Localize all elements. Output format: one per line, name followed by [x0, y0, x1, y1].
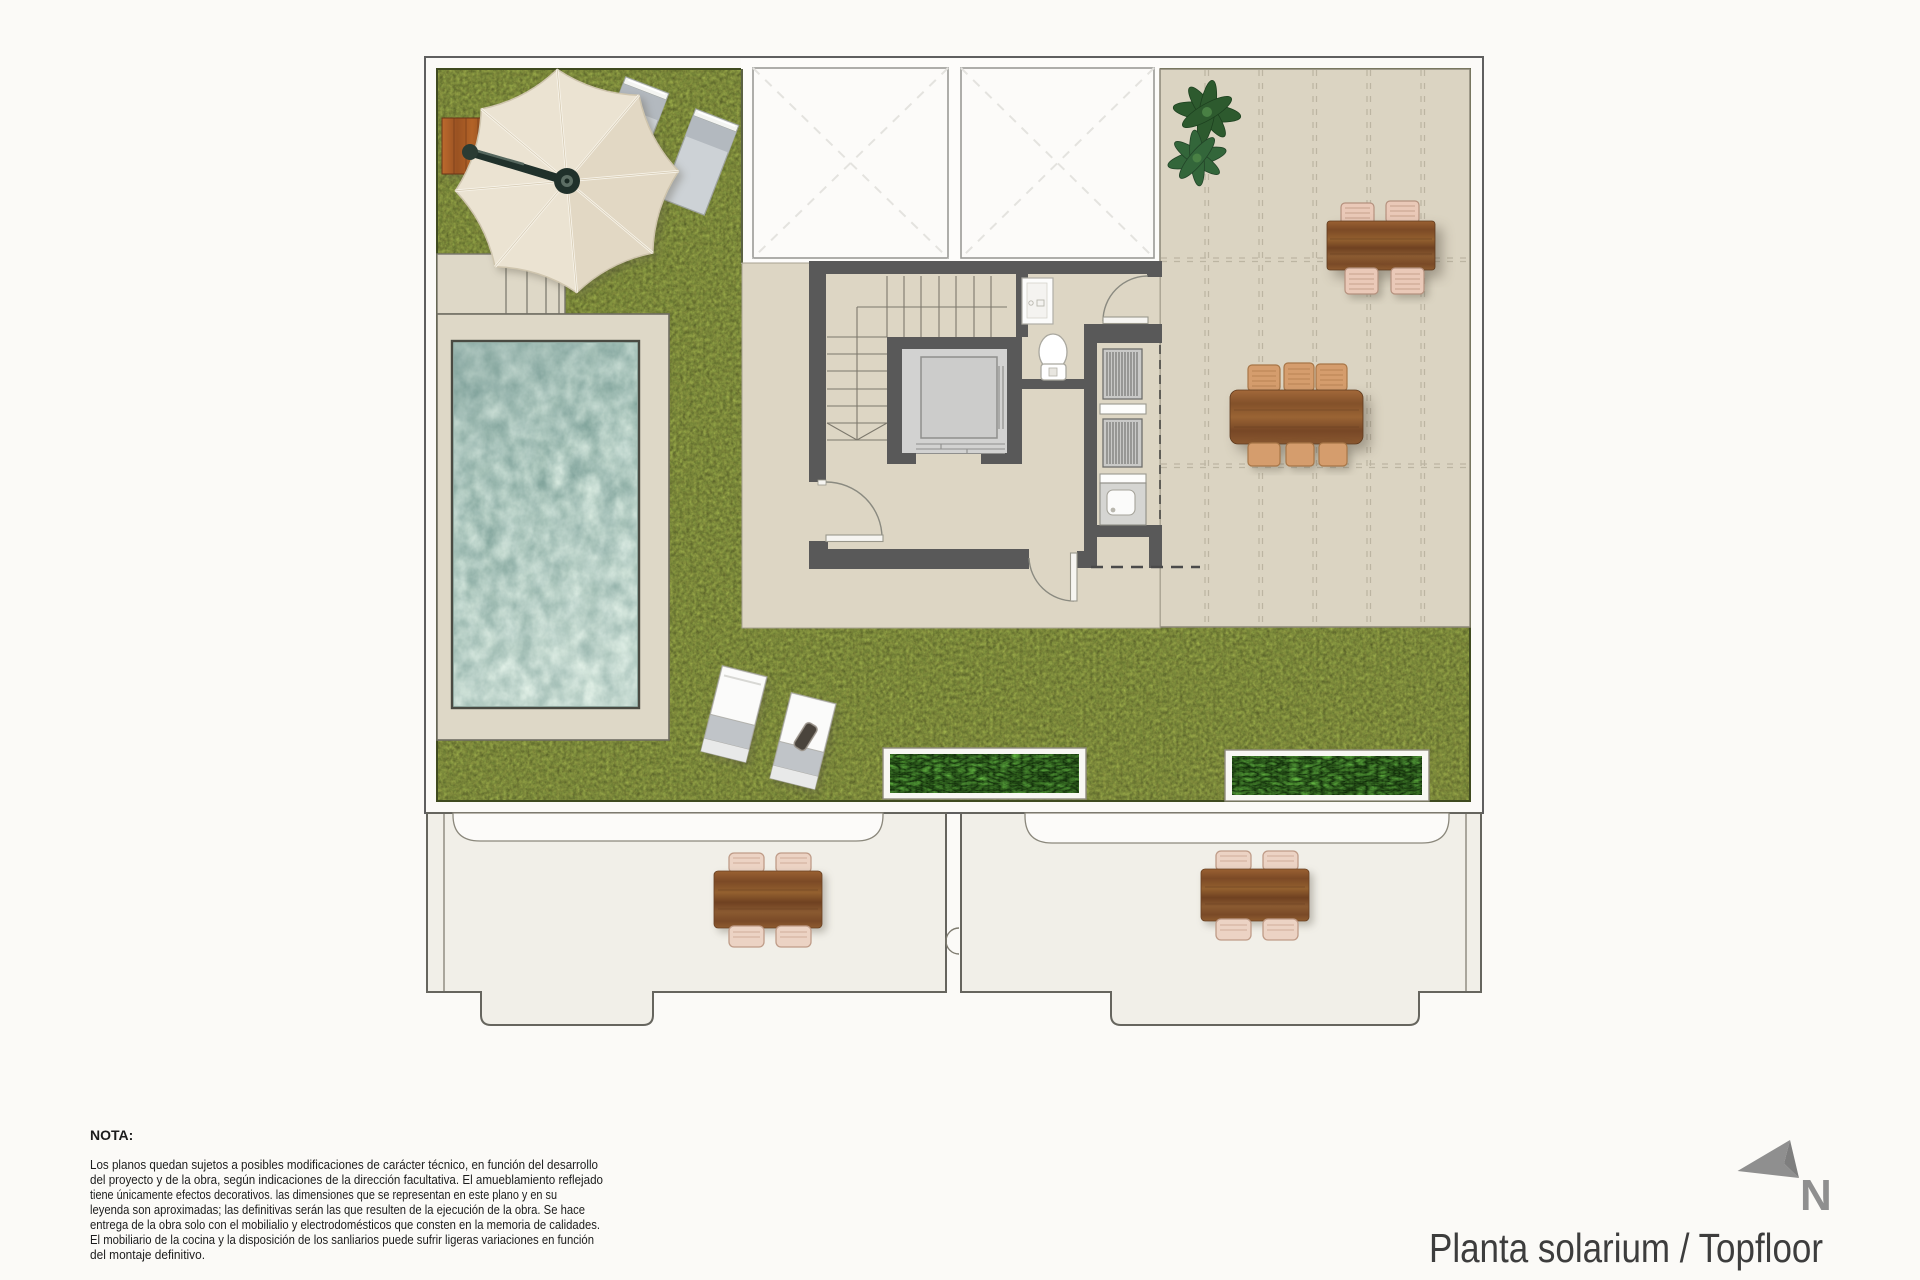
svg-text:Los planos quedan sujetos a po: Los planos quedan sujetos a posibles mod… — [90, 1157, 598, 1172]
svg-text:El mobiliario de la cocina y l: El mobiliario de la cocina y la disposic… — [90, 1232, 594, 1247]
svg-text:leyenda son aproximadas; las d: leyenda son aproximadas; las definitivas… — [90, 1202, 585, 1217]
svg-text:tiene únicamente efectos decor: tiene únicamente efectos decorativos. la… — [90, 1187, 557, 1202]
svg-text:del montaje definitivo.: del montaje definitivo. — [90, 1247, 205, 1262]
svg-text:N: N — [1800, 1171, 1832, 1220]
svg-text:NOTA:: NOTA: — [90, 1127, 133, 1143]
svg-text:del proyecto y de la obra, seg: del proyecto y de la obra, según indicac… — [90, 1172, 603, 1187]
svg-text:Planta solarium / Topfloor: Planta solarium / Topfloor — [1429, 1225, 1823, 1271]
svg-text:entrega de la obra solo con el: entrega de la obra solo con el mobiliali… — [90, 1217, 600, 1232]
